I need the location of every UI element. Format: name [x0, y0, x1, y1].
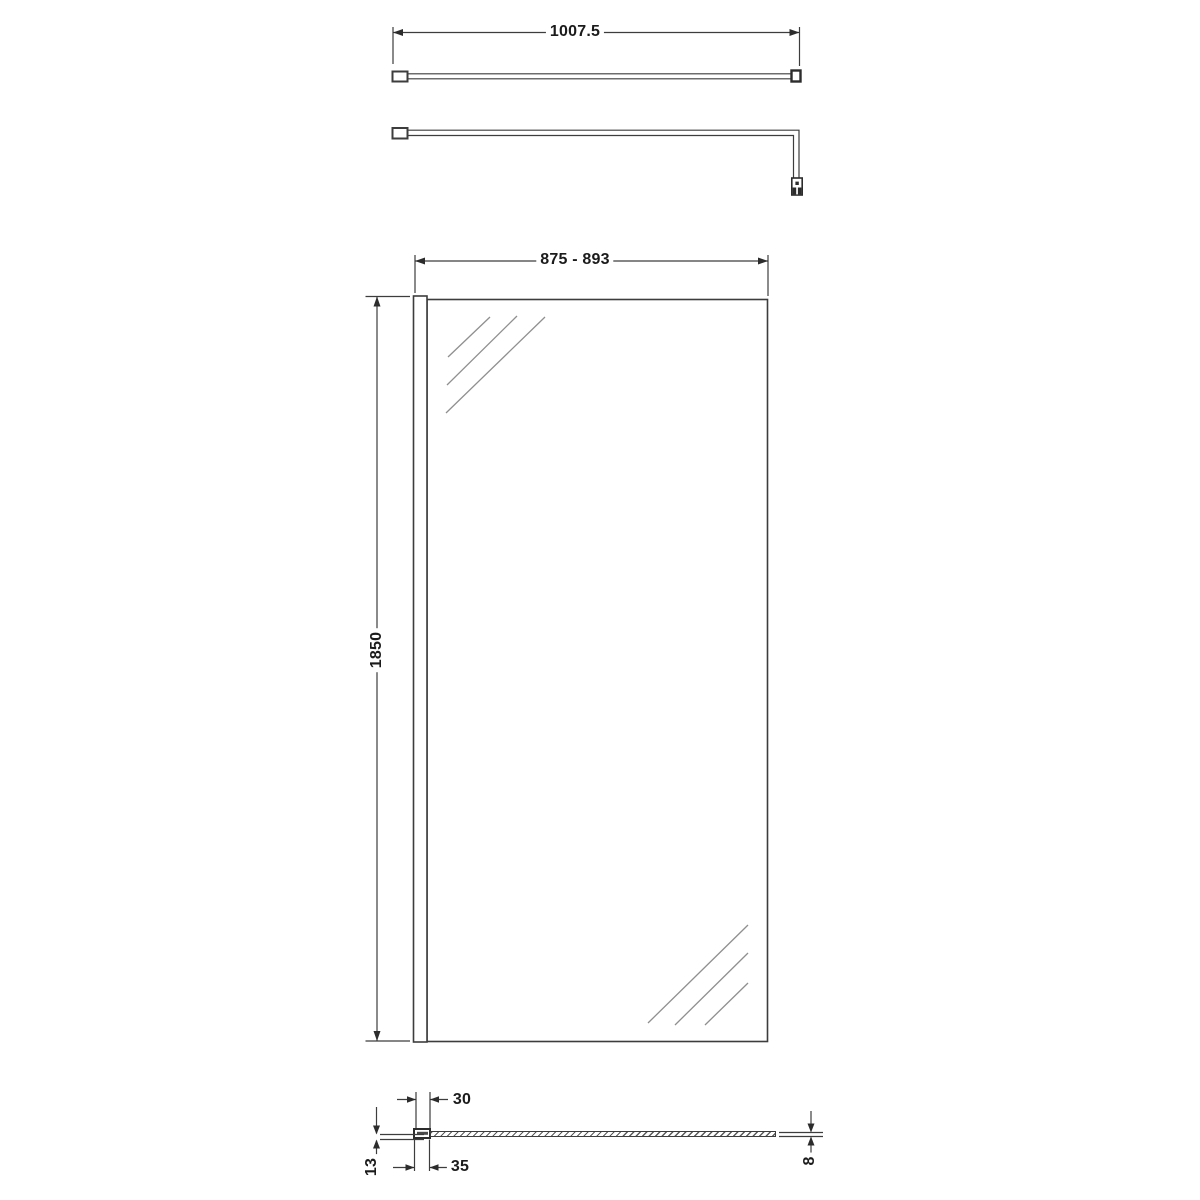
wall-bracket [393, 72, 408, 82]
panel-width-dimension-label: 875 - 893 [536, 251, 613, 269]
support-arm-elevation-view [393, 128, 803, 195]
profile-depth-dimension-label: 13 [363, 1154, 381, 1180]
wall-profile-plan-view [414, 1129, 430, 1138]
technical-drawing-wetroom-screen: 1007.5 875 - 893 1850 30 35 13 8 [0, 0, 1200, 1200]
wall-profile-front-view [414, 296, 428, 1042]
profile-cover-dimension [397, 1092, 448, 1128]
wall-bracket [393, 128, 408, 139]
profile-cover-dimension-label: 30 [449, 1091, 475, 1109]
profile-base-dimension-label: 35 [447, 1158, 473, 1176]
profile-base-dimension [393, 1140, 449, 1172]
drawing-linework [0, 0, 1200, 1200]
glass-thickness-dimension-label: 8 [801, 1152, 819, 1169]
panel-height-dimension-label: 1850 [368, 628, 386, 672]
support-arm-plan-view [393, 71, 801, 82]
glass-panel-plan-view [430, 1131, 776, 1137]
glass-thickness-dimension [779, 1111, 823, 1153]
arm-end-fitting [792, 71, 801, 82]
arm-width-dimension-label: 1007.5 [546, 23, 604, 41]
glass-panel-front-view [427, 300, 768, 1042]
glass-clamp [792, 178, 802, 195]
